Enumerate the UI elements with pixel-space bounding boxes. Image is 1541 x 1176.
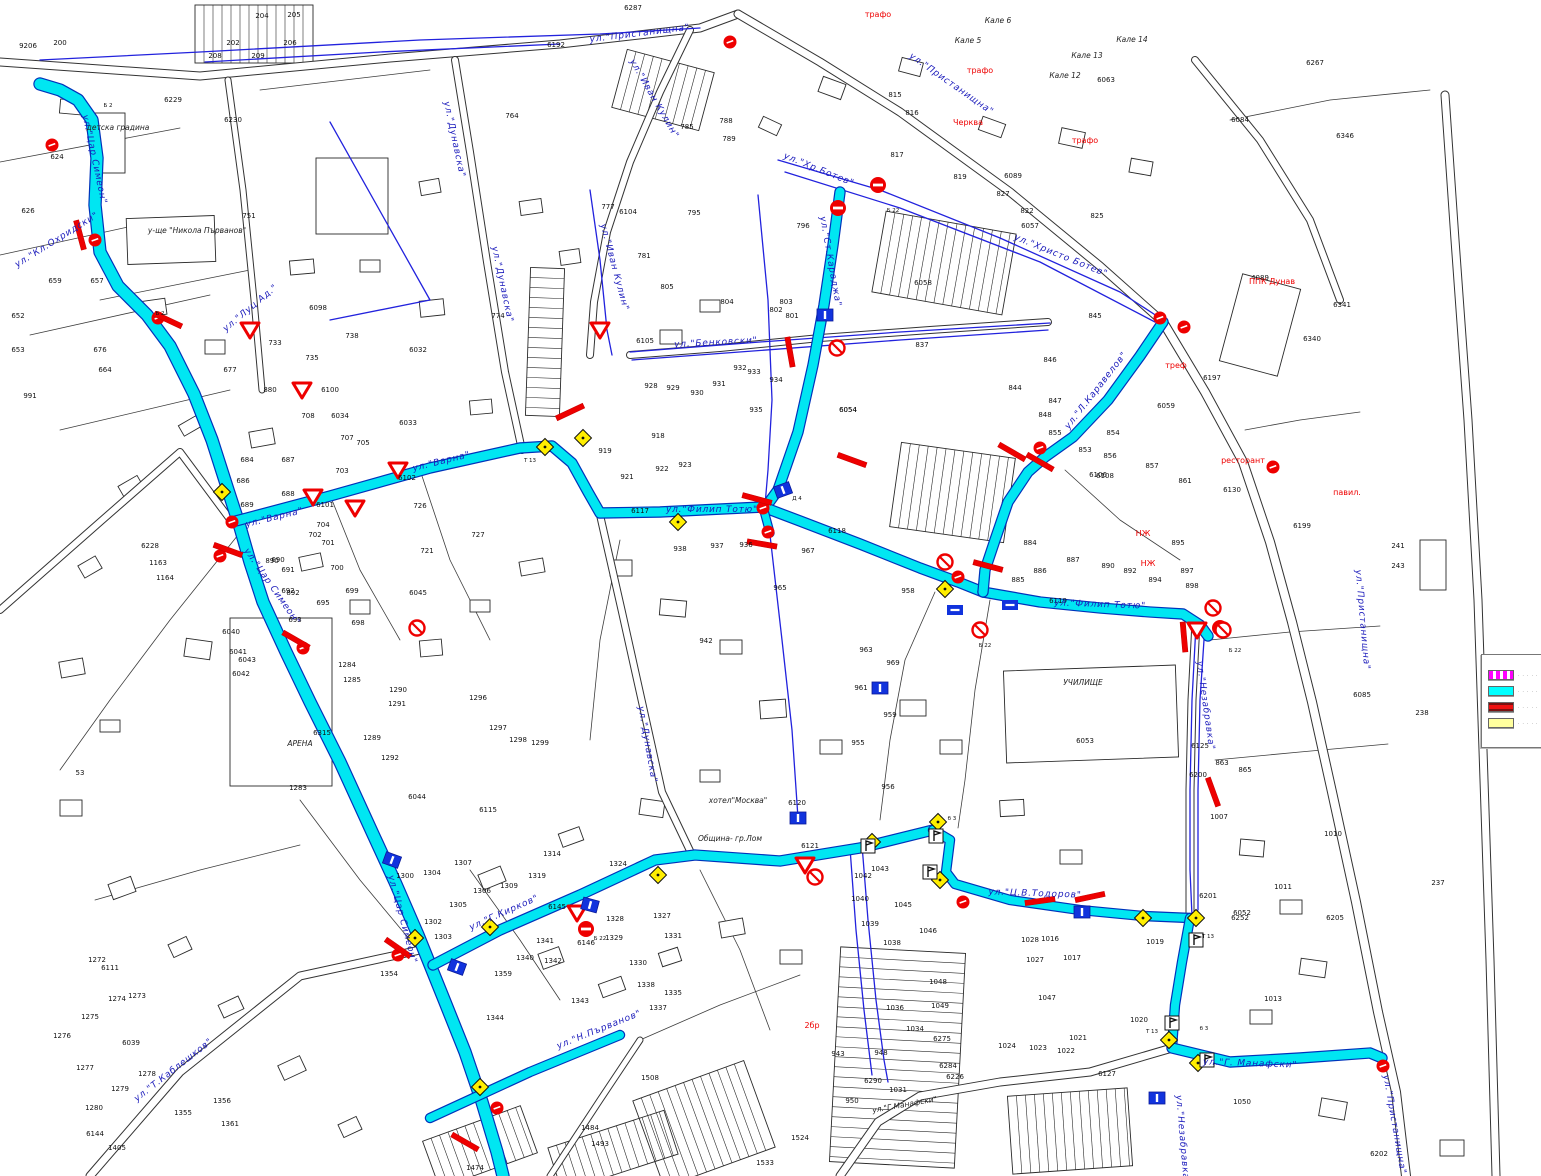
building-outline [700, 770, 720, 782]
info-sign-icon [817, 309, 833, 321]
parcel-number: 6053 [1076, 737, 1094, 745]
map-annotation: Д 4 [792, 496, 802, 502]
parcel-number: 965 [773, 584, 786, 592]
parcel-number: 6267 [1306, 59, 1324, 67]
parcel-number: 1028 [1021, 936, 1039, 944]
building-outline [419, 639, 442, 657]
parcel-number: 6032 [409, 346, 427, 354]
parcel-number: 1290 [389, 686, 407, 694]
parcel-boundary-line [1230, 90, 1430, 120]
fire-hydrant-icon [226, 516, 239, 529]
legend-row: · · · · · [1488, 715, 1541, 731]
map-annotation: Б 22 [887, 208, 900, 214]
parcel-number: 701 [321, 539, 334, 547]
building-outline [419, 178, 441, 195]
parcel-number: 53 [76, 769, 85, 777]
parcel-number: 853 [1078, 446, 1091, 454]
parcel-number: 705 [356, 439, 369, 447]
parcel-number: 1335 [664, 989, 682, 997]
place-label: УЧИЛИЩЕ [1063, 678, 1103, 687]
parcel-number: 6118 [828, 527, 846, 535]
parcel-number: 1048 [929, 978, 947, 986]
parcel-number: 1038 [883, 939, 901, 947]
parcel-number: 932 [733, 364, 746, 372]
map-viewport[interactable]: 9206619262296230624626751628777476478878… [0, 0, 1541, 1176]
map-annotation: Б 22 [979, 643, 992, 649]
parcel-number: 738 [345, 332, 358, 340]
map-annotation: Б 2 [103, 103, 112, 109]
red-note-label: треф [1165, 361, 1187, 370]
parcel-number: 6089 [1004, 172, 1022, 180]
street-casing [90, 950, 420, 1176]
parcel-strip [872, 211, 1016, 315]
building-outline [78, 556, 102, 578]
building-outline [1319, 1098, 1348, 1120]
no-stopping-sign-icon [938, 555, 953, 570]
parcel-number: 721 [420, 547, 433, 555]
red-note-label: НЖ [1136, 529, 1151, 538]
parcel-number: 822 [1020, 207, 1033, 215]
parcel-number: 6290 [864, 1077, 882, 1085]
parcel-number: 687 [281, 456, 294, 464]
parcel-number: 855 [1048, 429, 1061, 437]
parcel-number: 208 [208, 52, 221, 60]
parcel-number: 652 [11, 312, 24, 320]
parcel-number: 967 [801, 547, 814, 555]
parcel-number: 1292 [381, 754, 399, 762]
parcel-number: 626 [21, 207, 35, 215]
parcel-number: 6201 [1199, 892, 1217, 900]
map-annotation: Б 22 [594, 936, 607, 942]
parcel-number: 1343 [571, 997, 589, 1005]
parcel-number: 6226 [946, 1073, 964, 1081]
parcel-number: 1050 [1233, 1098, 1251, 1106]
parcel-number: 935 [749, 406, 762, 414]
parcel-number: 1340 [516, 954, 534, 962]
parcel-number: 6121 [801, 842, 819, 850]
fire-hydrant-icon [1267, 461, 1280, 474]
info-sign-icon [1149, 1092, 1165, 1104]
red-line-icon [1488, 702, 1514, 712]
street-surface [228, 80, 262, 390]
parcel-strip [525, 267, 564, 416]
parcel-number: 684 [240, 456, 254, 464]
parcel-number: 1039 [861, 920, 879, 928]
parcel-number: 6341 [1333, 301, 1351, 309]
hydrant-box-icon [1165, 1016, 1179, 1030]
parcel-number: 6105 [636, 337, 654, 345]
parcel-number: 1533 [756, 1159, 774, 1167]
building-outline [639, 798, 665, 817]
parcel-number: 937 [710, 542, 723, 550]
parcel-number: 6084 [1231, 116, 1249, 124]
parcel-number: 6108 [1096, 472, 1114, 480]
parcel-number: 1280 [85, 1104, 103, 1112]
map-annotation: Б 22 [1229, 648, 1242, 654]
parcel-number: 892 [1123, 567, 1136, 575]
cadastral-map-canvas[interactable]: 9206619262296230624626751628777476478878… [0, 0, 1541, 1176]
parcel-number: 1049 [931, 1002, 949, 1010]
parcel-number: 6315 [313, 729, 331, 737]
parcel-number: 777 [601, 203, 614, 211]
fire-hydrant-icon [724, 36, 737, 49]
parcel-number: 795 [687, 209, 700, 217]
parcel-number: 1304 [423, 869, 441, 877]
street-name-label: ул."Незабравка" [1173, 1094, 1191, 1176]
building-outline [126, 215, 216, 264]
parcel-number: 1291 [388, 700, 406, 708]
pipe-closure-bar-icon [451, 1132, 480, 1152]
legend-title: · · [1488, 660, 1541, 667]
building-outline [1000, 799, 1025, 816]
parcel-boundary-line [1065, 470, 1180, 560]
valve-diamond-icon [650, 867, 667, 884]
water-main [983, 592, 1208, 636]
building-outline [289, 259, 314, 275]
parcel-number: 844 [1008, 384, 1022, 392]
parcel-number: 1289 [363, 734, 381, 742]
parcel-number: 6199 [1293, 522, 1311, 530]
map-annotation: Т 13 [1201, 934, 1215, 940]
street-name-label: ул."Филип Тотю" [665, 505, 758, 515]
parcel-number: 6192 [547, 41, 565, 49]
street-casing [1195, 60, 1340, 300]
parcel-strip [1007, 1088, 1132, 1174]
no-stopping-sign-icon [1206, 601, 1221, 616]
parcel-number: 1300 [396, 872, 414, 880]
minus-sign-icon [1002, 600, 1018, 610]
parcel-number: 689 [240, 501, 253, 509]
parcel-number: 695 [316, 599, 329, 607]
parcel-number: 700 [330, 564, 343, 572]
red-note-label: НЖ [1141, 559, 1156, 568]
parcel-number: 708 [301, 412, 314, 420]
parcel-number: 789 [722, 135, 735, 143]
place-label: Кале 13 [1071, 51, 1102, 60]
building-outline [940, 740, 962, 754]
building-outline [1129, 158, 1153, 176]
parcel-number: 991 [23, 392, 36, 400]
parcel-number: 1324 [609, 860, 627, 868]
parcel-number: 919 [598, 447, 611, 455]
parcel-number: 1344 [486, 1014, 504, 1022]
place-label: детска градина [86, 123, 150, 132]
red-note-label: трафо [1072, 136, 1098, 145]
legend-row: · · · · · · [1488, 667, 1541, 683]
parcel-number: 936 [739, 541, 753, 549]
parcel-number: 801 [785, 312, 798, 320]
parcel-number: 664 [98, 366, 112, 374]
parcel-number: 1040 [851, 895, 869, 903]
parcel-number: 205 [287, 11, 300, 19]
valve-diamond-icon [575, 430, 592, 447]
fire-hydrant-icon [1377, 1060, 1390, 1073]
red-note-label: 2бр [804, 1021, 819, 1030]
info-sign-icon [447, 959, 466, 976]
parcel-number: 856 [1103, 452, 1117, 460]
building-outline [1219, 274, 1300, 376]
parcel-number: 9206 [19, 42, 37, 50]
parcel-number: 1022 [1057, 1047, 1075, 1055]
parcel-number: 6287 [624, 4, 642, 12]
red-note-label: Черква [953, 118, 983, 127]
parcel-number: 6197 [1203, 374, 1221, 382]
parcel-number: 816 [905, 109, 919, 117]
hydrant-box-icon [1189, 933, 1203, 947]
street-surface [0, 14, 738, 76]
no-entry-sign-icon [578, 921, 594, 937]
parcel-number: 1036 [886, 1004, 904, 1012]
parcel-number: 6059 [1157, 402, 1175, 410]
building-outline [184, 638, 212, 659]
info-sign-icon [1074, 906, 1090, 918]
building-outline [316, 158, 388, 234]
parcel-number: 950 [845, 1097, 858, 1105]
place-label: хотел"Москва" [708, 796, 767, 805]
hydrant-box-icon [929, 829, 943, 843]
parcel-number: 6146 [577, 939, 595, 947]
parcel-number: 1276 [53, 1032, 71, 1040]
parcel-number: 785 [680, 123, 693, 131]
red-note-label: трафо [865, 10, 891, 19]
building-outline [1239, 839, 1264, 857]
water-main [933, 830, 1190, 918]
parcel-number: 803 [779, 298, 792, 306]
parcel-number: 1272 [88, 956, 106, 964]
parcel-number: 1283 [289, 784, 307, 792]
building-outline [559, 249, 581, 266]
no-entry-sign-icon [870, 177, 886, 193]
parcel-number: 805 [660, 283, 673, 291]
no-entry-sign-icon [830, 200, 846, 216]
parcel-number: 6033 [399, 419, 417, 427]
building-outline [1280, 900, 1302, 914]
no-stopping-sign-icon [808, 870, 823, 885]
pipe-closure-bar-icon [1205, 777, 1220, 807]
parcel-number: 698 [351, 619, 364, 627]
parcel-number: 6144 [86, 1130, 104, 1138]
building-outline [60, 800, 82, 816]
parcel-number: 895 [1171, 539, 1184, 547]
parcel-number: 6042 [232, 670, 250, 678]
parcel-number: 1034 [906, 1025, 924, 1033]
building-outline [658, 947, 681, 966]
place-label: Кале 6 [985, 16, 1012, 25]
parcel-number: 202 [226, 39, 239, 47]
parcel-number: 1319 [528, 872, 546, 880]
parcel-number: 1328 [606, 915, 624, 923]
parcel-number: 1361 [221, 1120, 239, 1128]
parcel-number: 1285 [343, 676, 361, 684]
parcel-number: 1338 [637, 981, 655, 989]
parcel-number: 894 [1148, 576, 1162, 584]
parcel-number: 1017 [1063, 954, 1081, 962]
parcel-strip [548, 1110, 678, 1176]
parcel-number: 1307 [454, 859, 472, 867]
parcel-boundary-line [1245, 412, 1360, 430]
parcel-number: 865 [1238, 766, 1251, 774]
parcel-number: 6041 [229, 648, 247, 656]
parcel-number: 942 [699, 637, 712, 645]
parcel-number: 659 [48, 277, 61, 285]
parcel-number: 6104 [619, 208, 637, 216]
legend-label: · · · · · [1518, 689, 1538, 694]
parcel-number: 930 [690, 389, 703, 397]
parcel-number: 241 [1391, 542, 1404, 550]
pipe-closure-bar-icon [1180, 622, 1188, 652]
parcel-number: 1010 [1324, 830, 1342, 838]
fire-hydrant-icon [1034, 442, 1047, 455]
building-outline [558, 827, 583, 848]
parcel-number: 1309 [500, 882, 518, 890]
parcel-number: 1007 [1210, 813, 1228, 821]
map-annotation: Б 2 [155, 311, 164, 317]
parcel-number: 6111 [101, 964, 119, 972]
parcel-number: 1474 [466, 1164, 484, 1172]
parcel-number: 1306 [473, 887, 491, 895]
parcel-number: 6130 [1223, 486, 1241, 494]
parcel-number: 727 [471, 531, 484, 539]
parcel-number: 1356 [213, 1097, 231, 1105]
building-outline [469, 399, 492, 415]
building-outline [700, 300, 720, 312]
parcel-number: 676 [93, 346, 107, 354]
parcel-number: 1024 [998, 1042, 1016, 1050]
water-pipe-line [770, 535, 798, 818]
building-outline [820, 740, 842, 754]
building-outline [719, 918, 745, 938]
parcel-number: 1329 [605, 934, 623, 942]
parcel-number: 6115 [479, 806, 497, 814]
building-outline [59, 658, 85, 678]
parcel-number: 1021 [1069, 1034, 1087, 1042]
parcel-number: 6102 [398, 474, 416, 482]
street-name-label: ул."Г. Манафски" [1202, 1057, 1298, 1070]
fire-hydrant-icon [957, 896, 970, 909]
map-annotation: б 3 [948, 816, 957, 822]
parcel-number: 887 [1066, 556, 1079, 564]
place-label: Кале 14 [1116, 35, 1147, 44]
parcel-number: 948 [874, 1049, 887, 1057]
parcel-number: 921 [620, 473, 633, 481]
fire-hydrant-icon [89, 234, 102, 247]
parcel-number: 238 [1415, 709, 1428, 717]
parcel-number: 6202 [1370, 1150, 1388, 1158]
parcel-number: 961 [854, 684, 867, 692]
place-label: АРЕНА [286, 739, 312, 748]
parcel-number: 6085 [1353, 691, 1371, 699]
water-pipe-line [862, 845, 888, 1082]
parcel-number: 802 [769, 306, 782, 314]
street-name-label: ул."Незабравка" [1194, 660, 1217, 751]
parcel-number: 624 [50, 153, 64, 161]
parcel-number: 956 [881, 783, 895, 791]
parcel-number: 6230 [224, 116, 242, 124]
parcel-number: 880 [263, 386, 276, 394]
building-outline [1440, 1140, 1464, 1156]
building-outline [350, 600, 370, 614]
parcel-number: 1493 [591, 1140, 609, 1148]
yield-sign-icon [346, 501, 364, 516]
parcel-number: 6034 [331, 412, 349, 420]
parcel-number: 1031 [889, 1086, 907, 1094]
parcel-number: 817 [890, 151, 903, 159]
parcel-number: 1046 [919, 927, 937, 935]
parcel-number: 237 [1431, 879, 1444, 887]
parcel-number: 6252 [1231, 914, 1249, 922]
parcel-number: 837 [915, 341, 928, 349]
parcel-number: 204 [255, 12, 269, 20]
fire-hydrant-icon [1154, 312, 1167, 325]
parcel-number: 1042 [854, 872, 872, 880]
building-outline [759, 699, 786, 719]
parcel-number: 1164 [156, 574, 174, 582]
parcel-number: 1043 [871, 865, 889, 873]
building-outline [100, 720, 120, 732]
building-outline [218, 996, 244, 1018]
fire-hydrant-icon [762, 526, 775, 539]
parcel-number: 653 [11, 346, 24, 354]
parcel-number: 898 [1185, 582, 1198, 590]
parcel-number: 1163 [149, 559, 167, 567]
red-note-label: трафо [967, 66, 993, 75]
water-main [763, 507, 983, 592]
water-pipe-line [850, 848, 872, 1075]
building-outline [1420, 540, 1446, 590]
street-name-label: ул."Хр.Ботев" [781, 151, 855, 189]
street-name-label: ул."Пристанищна" [906, 51, 995, 118]
parcel-number: 1327 [653, 912, 671, 920]
parcel-number: 6145 [548, 903, 566, 911]
info-sign-icon [790, 812, 806, 824]
parcel-number: 846 [1043, 356, 1057, 364]
parcel-number: 959 [883, 711, 896, 719]
parcel-number: 1305 [449, 901, 467, 909]
parcel-number: 688 [281, 490, 294, 498]
parcel-number: 918 [651, 432, 664, 440]
parcel-number: 863 [1215, 759, 1228, 767]
parcel-number: 890 [1101, 562, 1114, 570]
place-label: Кале 5 [955, 36, 982, 45]
building-outline [598, 976, 625, 997]
water-main [983, 322, 1163, 592]
parcel-number: 1020 [1130, 1016, 1148, 1024]
place-label: Община- гр.Лом [698, 834, 762, 843]
parcel-number: 6101 [316, 501, 334, 509]
parcel-number: 707 [340, 434, 353, 442]
building-outline [1250, 1010, 1272, 1024]
parcel-number: 6340 [1303, 335, 1321, 343]
street-surface [1195, 60, 1340, 300]
map-annotation: б 3 [1200, 1026, 1209, 1032]
parcel-number: 847 [1048, 397, 1061, 405]
legend-label: · · · · · [1518, 721, 1538, 726]
legend-label: · · · · · · [1518, 673, 1541, 678]
building-outline [168, 936, 192, 957]
hydrant-box-icon [923, 865, 937, 879]
parcel-number: 1011 [1274, 883, 1292, 891]
info-sign-icon [872, 682, 888, 694]
parcel-number: 819 [953, 173, 966, 181]
parcel-number: 1303 [434, 933, 452, 941]
building-outline [338, 1116, 362, 1137]
parcel-number: 6117 [631, 507, 649, 515]
street-name-label: ул."Пристанищна" [588, 23, 690, 45]
parcel-number: 1508 [641, 1074, 659, 1082]
parcel-number: 1016 [1041, 935, 1059, 943]
parcel-number: 209 [251, 52, 264, 60]
parcel-number: 848 [1038, 411, 1051, 419]
